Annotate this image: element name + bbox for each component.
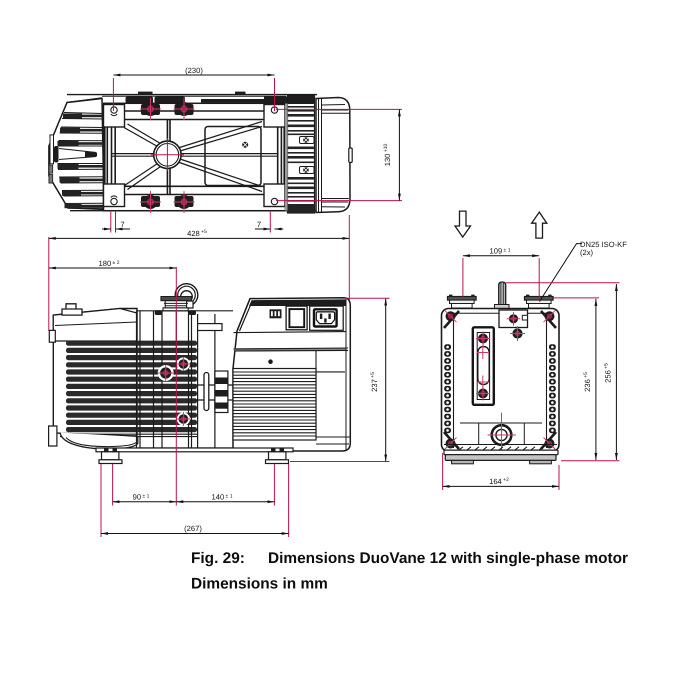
svg-text:7: 7 xyxy=(120,220,124,229)
svg-text:Dimensions in mm: Dimensions in mm xyxy=(191,576,328,593)
svg-text:Fig. 29:: Fig. 29: xyxy=(191,550,245,567)
svg-text:7: 7 xyxy=(257,220,261,229)
svg-text:(267): (267) xyxy=(184,524,202,533)
svg-text:(2x): (2x) xyxy=(580,248,594,257)
svg-text:(230): (230) xyxy=(185,66,203,75)
svg-text:Dimensions DuoVane 12 with sin: Dimensions DuoVane 12 with single-phase … xyxy=(268,550,628,567)
